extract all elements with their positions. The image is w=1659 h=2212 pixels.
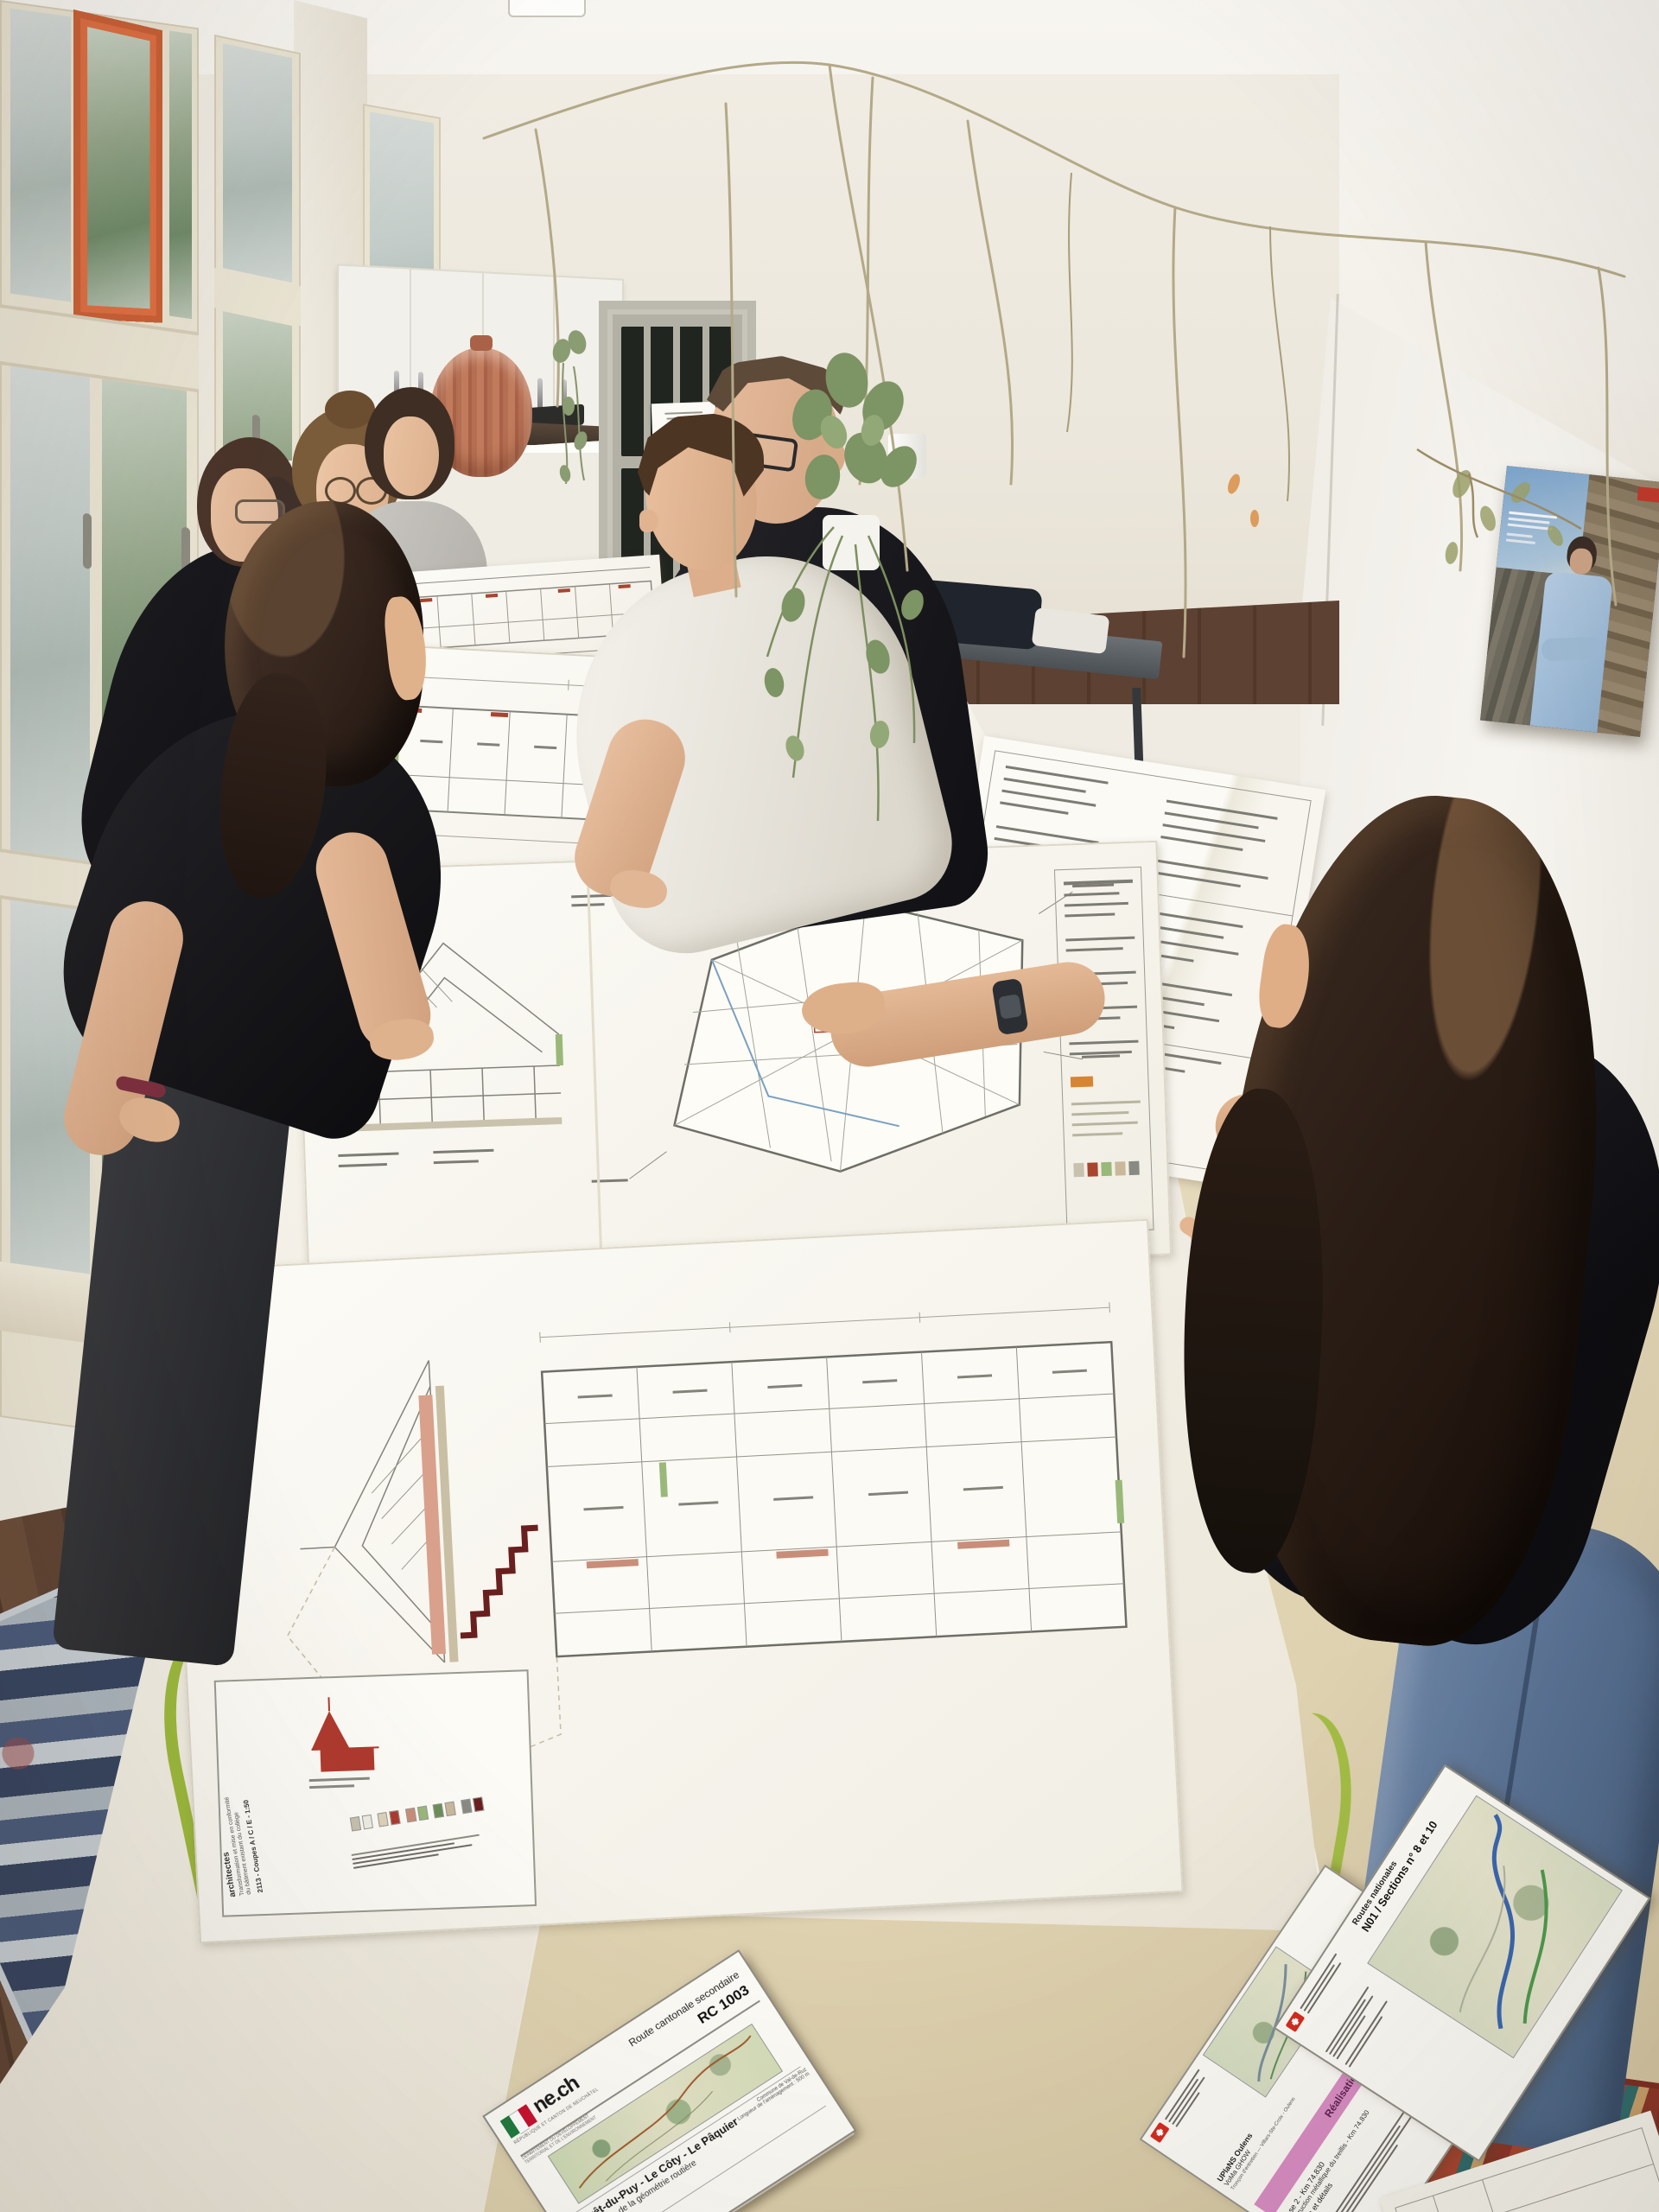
titleblock-project-2: du bâtiment existant du collège [214,1689,254,1895]
plan-sheet-wing [362,644,943,894]
person-woman-glasses-mouth [344,517,363,528]
back-wall [190,74,1339,679]
poster-sky [1495,466,1610,588]
titleblock-project-1: Transformation et mise en conformité [207,1690,246,1896]
report-n01-stack: UPlaNS Oulens VoMa GHOW Tronçon d'entret… [1020,1892,1659,2212]
person-foreground-right-forearm-point [1205,1084,1413,1223]
person-foreground-right-forearm-left [825,957,1109,1071]
report-n01-real: UPlaNS Oulens VoMa GHOW Tronçon d'entret… [1140,1865,1543,2212]
person-foreground-left-jeans [52,1046,296,1667]
oriental-rug-corner [1382,2047,1659,2212]
window-handle [181,527,190,583]
window-pane [102,379,187,875]
bench-leg [1132,688,1147,878]
wall-corner-line [1321,294,1338,726]
n01-category: Routes nationales [1351,1777,1452,1927]
vignette [0,0,1659,2212]
rc1003-route-type: Route cantonale secondaire [626,1968,741,2049]
window-pane [10,9,71,302]
person-ponytail-girl-hair [197,437,299,567]
person-foreground-left-face [382,594,430,702]
window-pane [223,311,292,689]
n01-phase: Phase 2 - Km 74.830 [1279,2006,1431,2212]
peninsula-counter [251,439,631,603]
rc1003-commune: Commune de Val-de-Ruz [729,2067,807,2120]
person-grey-sweater-girl-torso [340,501,487,665]
person-foreground-left-arm-right [308,823,439,1059]
person-foreground-left-torso [34,664,486,1149]
window-sill [0,1262,199,1358]
light-switch [719,603,743,652]
rc1003-dept-1: DÉPARTEMENT DU DÉVELOPPEMENT [521,2063,669,2161]
window-pane [10,900,90,1274]
back-door [599,301,756,619]
ne-ch-canton-line: RÉPUBLIQUE ET CANTON DE NEUCHÂTEL [513,2087,600,2145]
window-pane [169,31,192,320]
person-young-man-head [637,422,766,577]
rattan-basket-lamp [430,347,532,477]
right-wall [1300,259,1659,2212]
person-foreground-right-hair [1184,779,1633,1659]
n01-troncon: Tronçon d'entretien — Villars-Ste-Croix … [1230,2002,1360,2191]
person-woman-glasses-spectacles [325,477,356,505]
window-pane [10,366,90,861]
rc1003-subtitle: Amélioration de la géométrie routière [575,2082,816,2212]
csd-logo [1423,2044,1451,2075]
person-young-man-hair [638,413,764,508]
cloth-on-bench [1032,607,1110,654]
person-older-man [631,337,994,942]
beige-floor [449,899,1659,2212]
person-grey-sweater-girl-hair [365,387,454,499]
person-young-man-nose [639,510,658,532]
poster-person [1525,532,1619,733]
n01-side-label: T/U [1402,1927,1420,1942]
person-older-man-glasses [712,429,798,473]
cabinet-handle [562,379,567,428]
rc1003-project: Projet d'exécution [593,2110,836,2212]
n01-map [1367,1796,1623,2059]
plan-sheet-centre [294,841,1172,1286]
window-mid-band [0,849,199,926]
person-older-man-ear [823,439,845,474]
back-floor [372,601,1339,704]
person-foreground-left-hair [225,501,423,786]
plan-titleblock: architectes Transformation et mise en co… [214,1669,537,1917]
person-foreground-right-torso [1160,976,1659,1669]
plant-pot-on-cabinet [888,434,926,479]
wall-switch-box [764,484,790,537]
window-unit-3 [363,104,441,722]
n01-section: N01 / Sections n° 8 et 10 [1359,1782,1465,1934]
bench-leg [905,667,923,849]
person-woman-glasses-bun [325,391,375,429]
report-n01-cover: Routes nationales N01 / Sections n° 8 et… [1274,1764,1650,2162]
person-young-man-neck [683,537,741,597]
person-foreground-left-arm-left [56,893,191,1163]
person-ponytail-girl-ponytail [252,471,321,582]
rc1003-title: Le Crêt-du-Puy - Le Côty - Le Pâquier [566,2070,810,2212]
cup-rack [425,387,475,427]
rc1003-map [548,2024,783,2204]
work-table [0,562,1348,2212]
window-unit-1 [0,0,199,1445]
plan-sheet-bottom: architectes Transformation et mise en co… [164,1219,1183,1944]
countertop [328,412,631,450]
poster-village [1480,567,1591,730]
upper-cabinets [337,264,622,461]
person-ponytail-girl-glasses [235,499,285,524]
window-handle [252,414,260,461]
patterned-rug-left [0,1527,378,2085]
person-foreground-left-hand-right [367,1015,436,1064]
person-young-man-hand [607,867,670,912]
person-foreground-right-hand-point [1196,1183,1281,1256]
person-foreground-right-hair-strand [1167,1084,1339,1577]
cabinet-handle [418,372,423,420]
window-transom-band [0,304,199,392]
person-woman-glasses-hair [292,406,403,527]
window-bay [0,0,363,1555]
wall-poster [1480,466,1659,737]
person-woman-glasses-torso [240,534,468,762]
person-foreground-right-hand-left [799,979,887,1038]
person-foreground-right-jeans-seam [1465,1610,1540,2055]
person-foreground-left-hair-strand [202,667,343,906]
report-rc1003-cover: ne.ch RÉPUBLIQUE ET CANTON DE NEUCHÂTEL … [482,1949,856,2212]
bg-logo: BG [1439,2055,1470,2088]
titleblock-firm: architectes [196,1691,239,1897]
person-foreground-right-index-finger [1177,1214,1233,1258]
person-woman-glasses [242,380,501,752]
n01-line2: VoMa GHOW [1223,1997,1355,2188]
hanging-plants [0,0,1659,1123]
door-glass-panes [621,468,734,598]
poster-stone-wall [1563,474,1659,737]
green-chair-left [143,1623,308,1899]
backsplash [337,450,622,612]
wood-floor-left [0,1469,397,2212]
window-pane [223,43,292,283]
mirror-orange-frame [366,588,437,704]
bag-on-bench [908,579,1043,651]
person-foreground-right-watch [991,978,1028,1036]
window-unit-2 [214,35,301,1003]
rc1003-route-number: RC 1003 [695,1981,753,2027]
person-older-man-head [710,363,840,524]
swiss-flag-icon [1286,2012,1306,2032]
person-woman-glasses-spectacles [356,477,387,505]
open-window-orange-frame [73,10,162,323]
loose-sheet-corner [1379,2110,1659,2212]
ceiling [0,0,1659,536]
plan-legend-swatches [350,1790,524,1835]
report-rc1003: ne.ch RÉPUBLIQUE ET CANTON DE NEUCHÂTEL … [482,1947,866,2212]
person-ponytail-girl-arm [283,597,456,697]
plan-sheet-folded [921,736,1326,1192]
window-pier [294,0,367,796]
cooktop [524,404,584,429]
person-older-man-hair [707,356,843,435]
swiss-flag-icon [1150,2122,1170,2143]
person-young-man-arm [565,709,695,906]
door-sign [652,402,717,465]
ne-ch-logo-text: ne.ch [529,2071,584,2119]
side-bench [888,605,1173,890]
person-grey-sweater-girl-face [384,416,439,496]
n01-line1: UPlaNS Oulens [1216,1992,1349,2183]
titleblock-sheet-ref: 2113 - Coupes A / C / E - 1:50 [225,1688,265,1894]
person-foreground-right [778,778,1659,2212]
person-ponytail-girl-face [211,468,278,562]
window-pane [102,913,187,1288]
cabinet-handle [394,371,399,419]
person-ponytail-girl-torso [62,519,395,940]
person-ponytail-girl-hand [419,654,464,689]
kitchen [328,242,812,622]
person-foreground-right-face [1255,922,1315,1031]
rc1003-length: Longueur de l'aménagement : 500 m [733,2072,810,2126]
person-ponytail-girl [86,406,449,959]
person-young-man-torso [539,525,964,969]
person-grey-sweater-girl [328,372,518,665]
rc1003-dept-2: TERRITORIAL ET DE L'ENVIRONNEMENT [524,2067,671,2165]
soffit-light [390,106,449,138]
n01-band: Réalisation (RE) [1254,1949,1445,2212]
window-handle [83,512,92,569]
ne-ch-flag-icon [500,2104,537,2139]
n01-subject: Construction métallique du treillis - Km… [1286,2011,1437,2212]
kettle [477,368,515,425]
person-foreground-left-bracelet [115,1075,167,1099]
person-foreground-right-jeans [1332,1504,1659,2160]
person-foreground-right-upperarm [1231,1057,1404,1269]
person-young-man-white-tee [536,397,950,950]
person-woman-glasses-face [316,444,389,541]
photo-architecture-workshop: architectes Transformation et mise en co… [0,0,1659,2212]
poster-logo [1637,486,1659,503]
ceiling-light-strip [508,0,586,17]
door-glass-panes [621,327,734,456]
person-foreground-left [52,484,484,1694]
n01-map-2 [1203,1946,1339,2097]
window-pane [223,693,292,967]
person-foreground-left-hand-left [115,1091,185,1147]
n01-sheet: Coupes et détails [1294,2016,1446,2212]
person-older-man-torso [620,490,995,945]
cabinet-handle [537,378,543,427]
plan-sheet-far [401,555,667,683]
green-chair-right [1237,1706,1367,1926]
